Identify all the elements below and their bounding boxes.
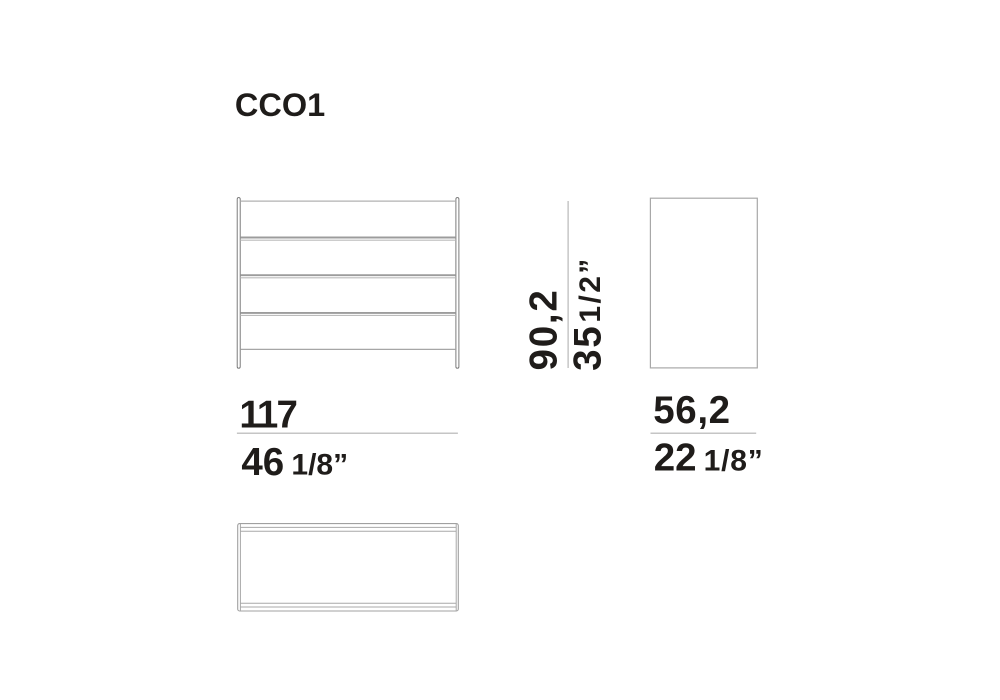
svg-text:1/8”: 1/8” bbox=[704, 444, 764, 477]
svg-text:1/8”: 1/8” bbox=[291, 449, 348, 482]
svg-text:56,2: 56,2 bbox=[653, 389, 730, 432]
svg-text:117: 117 bbox=[239, 394, 296, 437]
svg-text:90,2: 90,2 bbox=[523, 288, 566, 370]
svg-text:35: 35 bbox=[566, 324, 609, 370]
svg-text:46: 46 bbox=[241, 441, 284, 484]
svg-text:1/2”: 1/2” bbox=[574, 256, 607, 322]
svg-text:22: 22 bbox=[654, 437, 697, 480]
svg-text:CCO1: CCO1 bbox=[235, 87, 325, 123]
